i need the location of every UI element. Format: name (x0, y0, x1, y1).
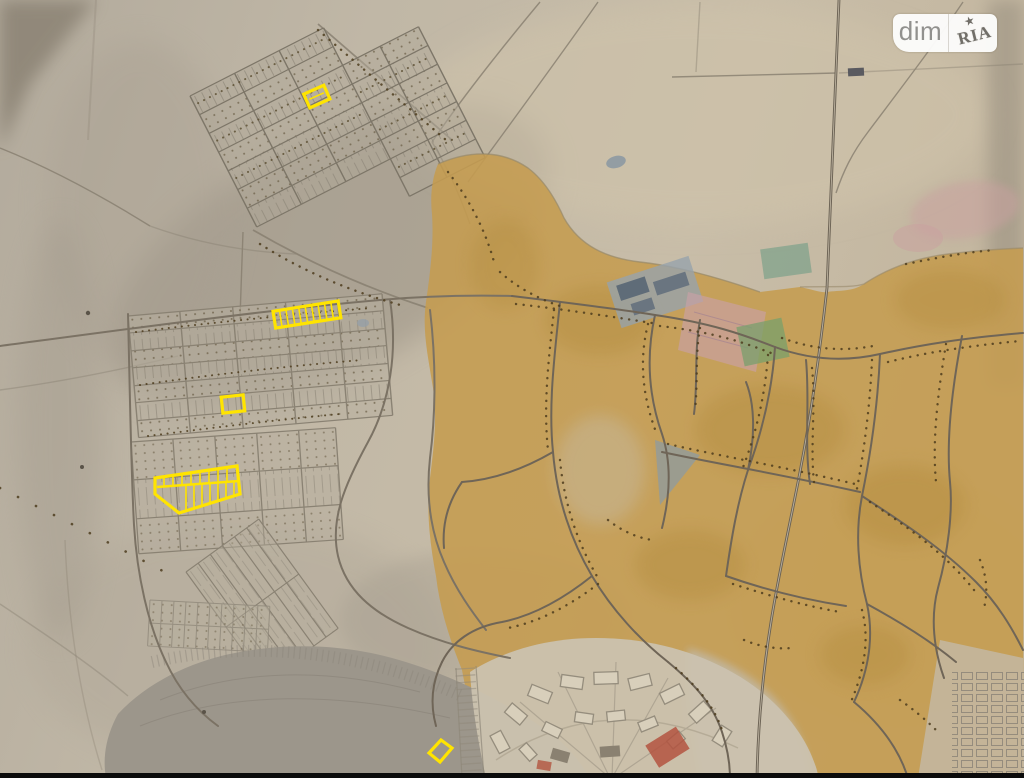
parcels-pond-west (148, 600, 270, 652)
dim-label: dim (899, 18, 942, 44)
listing-photo: dim ★ RIA (0, 0, 1024, 778)
ria-label: RIA (956, 22, 994, 50)
ria-logo: ★ RIA (949, 14, 997, 52)
dimria-watermark: dim ★ RIA (893, 14, 997, 52)
bottom-bar (0, 773, 1024, 778)
allotment-grid-west (128, 294, 393, 438)
dim-logo: dim (893, 14, 949, 52)
map-image (0, 0, 1024, 778)
station-icon (848, 68, 864, 77)
